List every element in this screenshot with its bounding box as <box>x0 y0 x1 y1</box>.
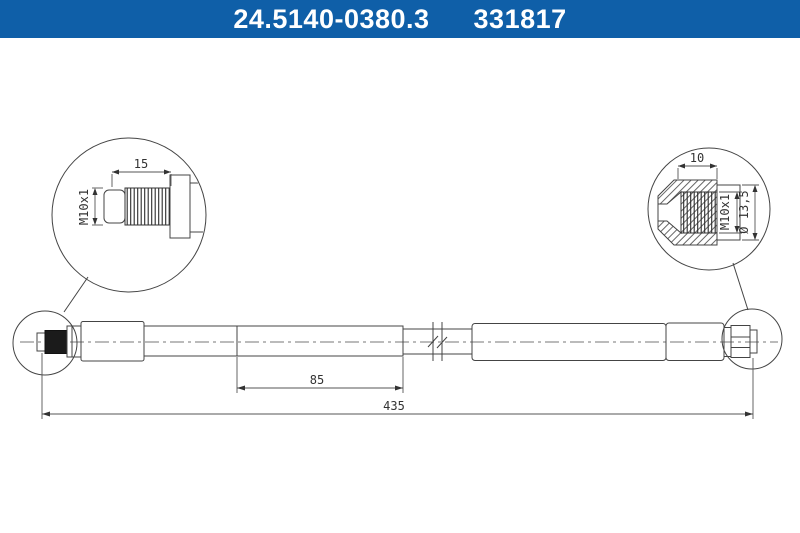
dimension-85-label: 85 <box>310 373 324 387</box>
break-symbol <box>428 322 447 361</box>
right-fitting-nut <box>731 326 750 358</box>
left-detail-dim-15 <box>112 170 171 188</box>
left-detail-hex <box>170 175 190 238</box>
right-detail-dim-10 <box>678 164 717 180</box>
brake-hose-diagram-page: 24.5140-0380.3 331817 <box>0 0 800 533</box>
dimension-435-label: 435 <box>383 399 405 413</box>
left-detail-dim-m10x1 <box>92 188 103 225</box>
pipe-section <box>144 326 403 356</box>
right-detail-dim-10-label: 10 <box>690 151 704 165</box>
left-detail-thread-spec-label: M10x1 <box>77 189 91 225</box>
brake-hose-drawing: 85 435 15 <box>0 0 800 533</box>
right-leader-line <box>733 263 748 310</box>
left-detail-thread <box>125 188 170 225</box>
right-detail-thread-bore <box>681 192 717 233</box>
left-detail-dim-15-label: 15 <box>134 157 148 171</box>
right-detail-thread-spec-label: M10x1 <box>718 194 732 230</box>
left-detail-collar <box>190 183 216 232</box>
left-leader-line <box>64 277 88 312</box>
left-crimp-collar <box>81 322 144 362</box>
main-view <box>13 263 782 375</box>
right-fitting-cap <box>750 330 757 353</box>
left-fitting-thread <box>45 331 67 354</box>
left-detail-pilot <box>104 190 125 223</box>
narrow-tube-section <box>403 329 472 354</box>
right-detail-diameter-label: Ø 13,5 <box>737 190 751 233</box>
